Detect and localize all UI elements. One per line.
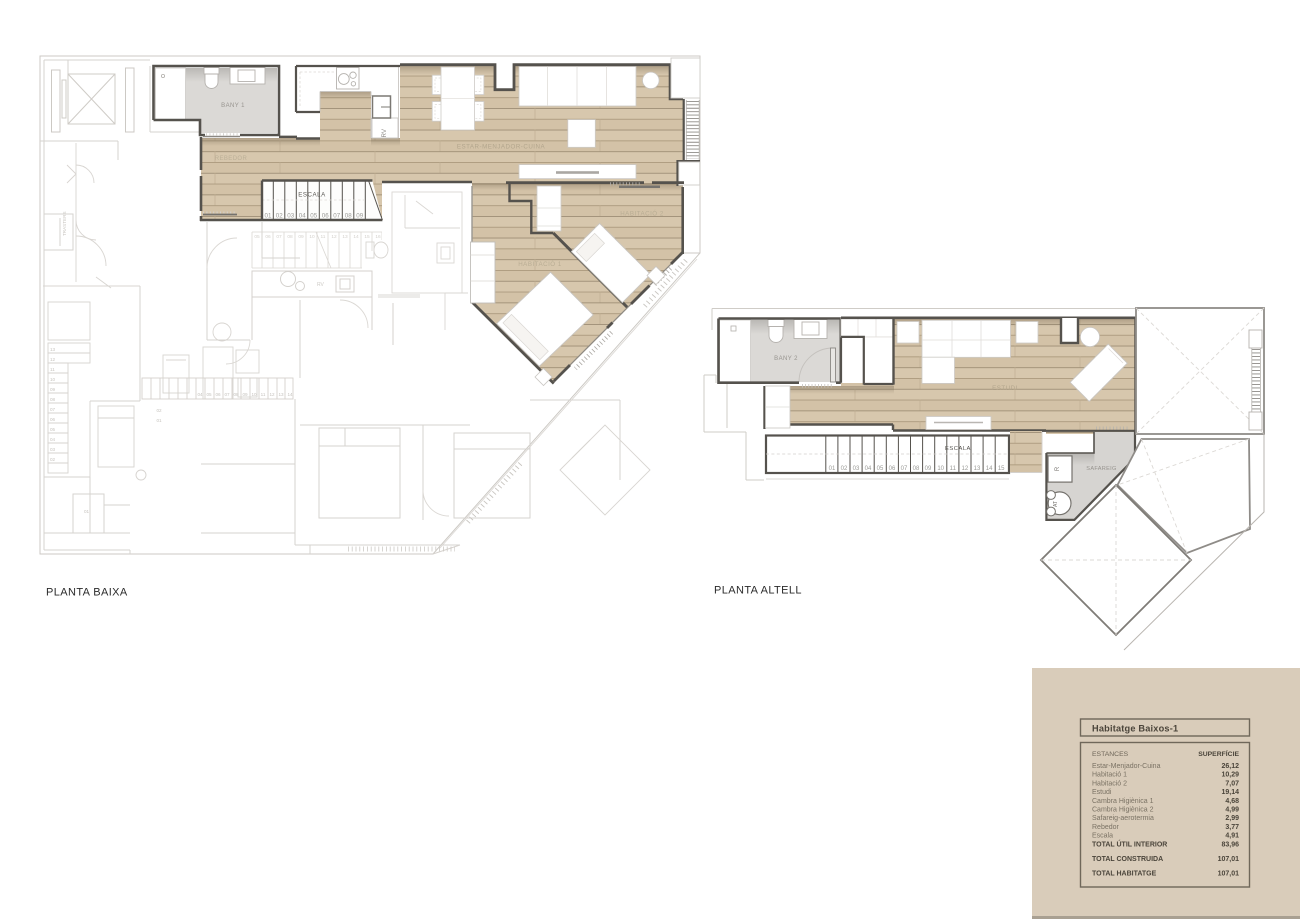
svg-text:14: 14	[353, 234, 359, 240]
svg-text:REBEDOR: REBEDOR	[215, 156, 248, 162]
svg-text:TRASTERS: TRASTERS	[62, 211, 67, 236]
svg-text:06: 06	[215, 392, 221, 397]
svg-text:4,91: 4,91	[1225, 833, 1239, 840]
svg-text:06: 06	[265, 234, 271, 240]
svg-text:PLANTA BAIXA: PLANTA BAIXA	[46, 587, 128, 599]
svg-text:07: 07	[224, 392, 230, 397]
svg-text:4,99: 4,99	[1225, 807, 1239, 814]
svg-text:08: 08	[233, 392, 239, 397]
svg-text:TOTAL CONSTRUIDA: TOTAL CONSTRUIDA	[1092, 856, 1163, 863]
svg-text:15: 15	[364, 234, 370, 240]
svg-text:Habitació 2: Habitació 2	[1092, 780, 1127, 787]
svg-text:13: 13	[974, 466, 981, 472]
svg-text:03: 03	[287, 213, 294, 220]
svg-text:09: 09	[356, 213, 363, 220]
svg-text:7,07: 7,07	[1225, 780, 1239, 787]
svg-text:107,01: 107,01	[1218, 856, 1240, 863]
svg-text:ESTANCES: ESTANCES	[1092, 751, 1129, 758]
svg-text:04: 04	[865, 466, 872, 472]
svg-text:TOTAL HABITATGE: TOTAL HABITATGE	[1092, 871, 1157, 878]
svg-text:Estar-Menjador-Cuina: Estar-Menjador-Cuina	[1092, 763, 1161, 770]
svg-text:107,01: 107,01	[1218, 871, 1240, 878]
svg-text:10: 10	[251, 392, 257, 397]
svg-text:03: 03	[50, 447, 56, 452]
svg-text:08: 08	[287, 234, 293, 240]
svg-text:07: 07	[50, 407, 56, 412]
svg-text:11: 11	[950, 466, 957, 472]
svg-text:15: 15	[998, 466, 1005, 472]
svg-text:02: 02	[156, 408, 162, 413]
svg-text:26,12: 26,12	[1221, 763, 1239, 770]
svg-text:16: 16	[375, 234, 381, 240]
svg-text:06: 06	[50, 417, 56, 422]
svg-text:2,99: 2,99	[1225, 815, 1239, 822]
svg-text:07: 07	[276, 234, 282, 240]
svg-text:13: 13	[342, 234, 348, 240]
svg-text:ESTAR-MENJADOR-CUINA: ESTAR-MENJADOR-CUINA	[457, 144, 546, 151]
svg-text:05: 05	[50, 427, 56, 432]
svg-text:13: 13	[50, 347, 56, 352]
svg-text:HABITACIÓ 2: HABITACIÓ 2	[620, 211, 664, 218]
svg-text:09: 09	[50, 387, 56, 392]
svg-text:Habitatge Baixos-1: Habitatge Baixos-1	[1092, 724, 1178, 734]
svg-text:07: 07	[333, 213, 340, 220]
svg-text:12: 12	[962, 466, 969, 472]
svg-text:BANY 2: BANY 2	[774, 356, 798, 362]
svg-text:14: 14	[986, 466, 993, 472]
svg-text:R: R	[1055, 466, 1061, 471]
svg-text:01: 01	[265, 213, 272, 220]
svg-text:3,77: 3,77	[1225, 824, 1239, 831]
svg-text:10: 10	[50, 377, 56, 382]
svg-text:02: 02	[841, 466, 848, 472]
svg-text:12: 12	[50, 357, 56, 362]
svg-text:09: 09	[242, 392, 248, 397]
svg-text:Estudi: Estudi	[1092, 789, 1112, 796]
svg-text:01: 01	[84, 509, 90, 514]
svg-text:Cambra Higiènica 1: Cambra Higiènica 1	[1092, 798, 1154, 805]
svg-text:03: 03	[853, 466, 860, 472]
svg-text:06: 06	[889, 466, 896, 472]
svg-text:01: 01	[829, 466, 836, 472]
svg-text:10: 10	[309, 234, 315, 240]
svg-text:08: 08	[50, 397, 56, 402]
svg-text:12: 12	[269, 392, 275, 397]
svg-text:12: 12	[331, 234, 337, 240]
svg-text:Rebedor: Rebedor	[1092, 824, 1120, 831]
svg-text:04: 04	[50, 437, 56, 442]
svg-text:Safareig-aerotermia: Safareig-aerotermia	[1092, 815, 1154, 822]
svg-text:BANY 1: BANY 1	[221, 103, 245, 109]
svg-text:ESCALA: ESCALA	[945, 446, 971, 452]
svg-text:HABITACIÓ 1: HABITACIÓ 1	[518, 261, 562, 268]
svg-text:10,29: 10,29	[1221, 772, 1239, 779]
svg-text:SAFAREIG: SAFAREIG	[1086, 466, 1116, 472]
svg-text:14: 14	[287, 392, 293, 397]
svg-text:05: 05	[254, 234, 260, 240]
svg-text:11: 11	[261, 392, 266, 397]
svg-text:08: 08	[345, 213, 352, 220]
svg-text:02: 02	[276, 213, 283, 220]
svg-text:ESCALA: ESCALA	[298, 192, 326, 199]
svg-text:02: 02	[50, 457, 56, 462]
svg-text:Habitació 1: Habitació 1	[1092, 772, 1127, 779]
svg-text:Cambra Higiènica 2: Cambra Higiènica 2	[1092, 807, 1154, 814]
svg-text:10: 10	[937, 466, 944, 472]
svg-text:19,14: 19,14	[1221, 789, 1239, 796]
svg-text:06: 06	[322, 213, 329, 220]
svg-text:09: 09	[298, 234, 304, 240]
svg-text:04: 04	[299, 213, 306, 220]
svg-text:05: 05	[206, 392, 212, 397]
svg-text:05: 05	[310, 213, 317, 220]
svg-text:83,96: 83,96	[1221, 841, 1239, 848]
svg-text:11: 11	[321, 234, 326, 240]
svg-text:11: 11	[50, 367, 55, 372]
svg-text:RV: RV	[381, 128, 388, 137]
svg-text:07: 07	[901, 466, 908, 472]
svg-text:05: 05	[877, 466, 884, 472]
svg-text:08: 08	[913, 466, 920, 472]
svg-text:09: 09	[925, 466, 932, 472]
svg-text:13: 13	[278, 392, 284, 397]
svg-text:04: 04	[197, 392, 203, 397]
svg-text:PLANTA ALTELL: PLANTA ALTELL	[714, 585, 802, 597]
svg-text:4,68: 4,68	[1225, 798, 1239, 805]
svg-text:01: 01	[156, 418, 162, 423]
svg-text:RV: RV	[317, 282, 325, 288]
svg-text:ESTUDI: ESTUDI	[992, 385, 1018, 392]
svg-text:AT: AT	[1053, 501, 1059, 507]
svg-text:TOTAL ÚTIL INTERIOR: TOTAL ÚTIL INTERIOR	[1092, 839, 1167, 848]
svg-text:Escala: Escala	[1092, 833, 1113, 840]
svg-text:SUPERFÍCIE: SUPERFÍCIE	[1198, 749, 1239, 758]
